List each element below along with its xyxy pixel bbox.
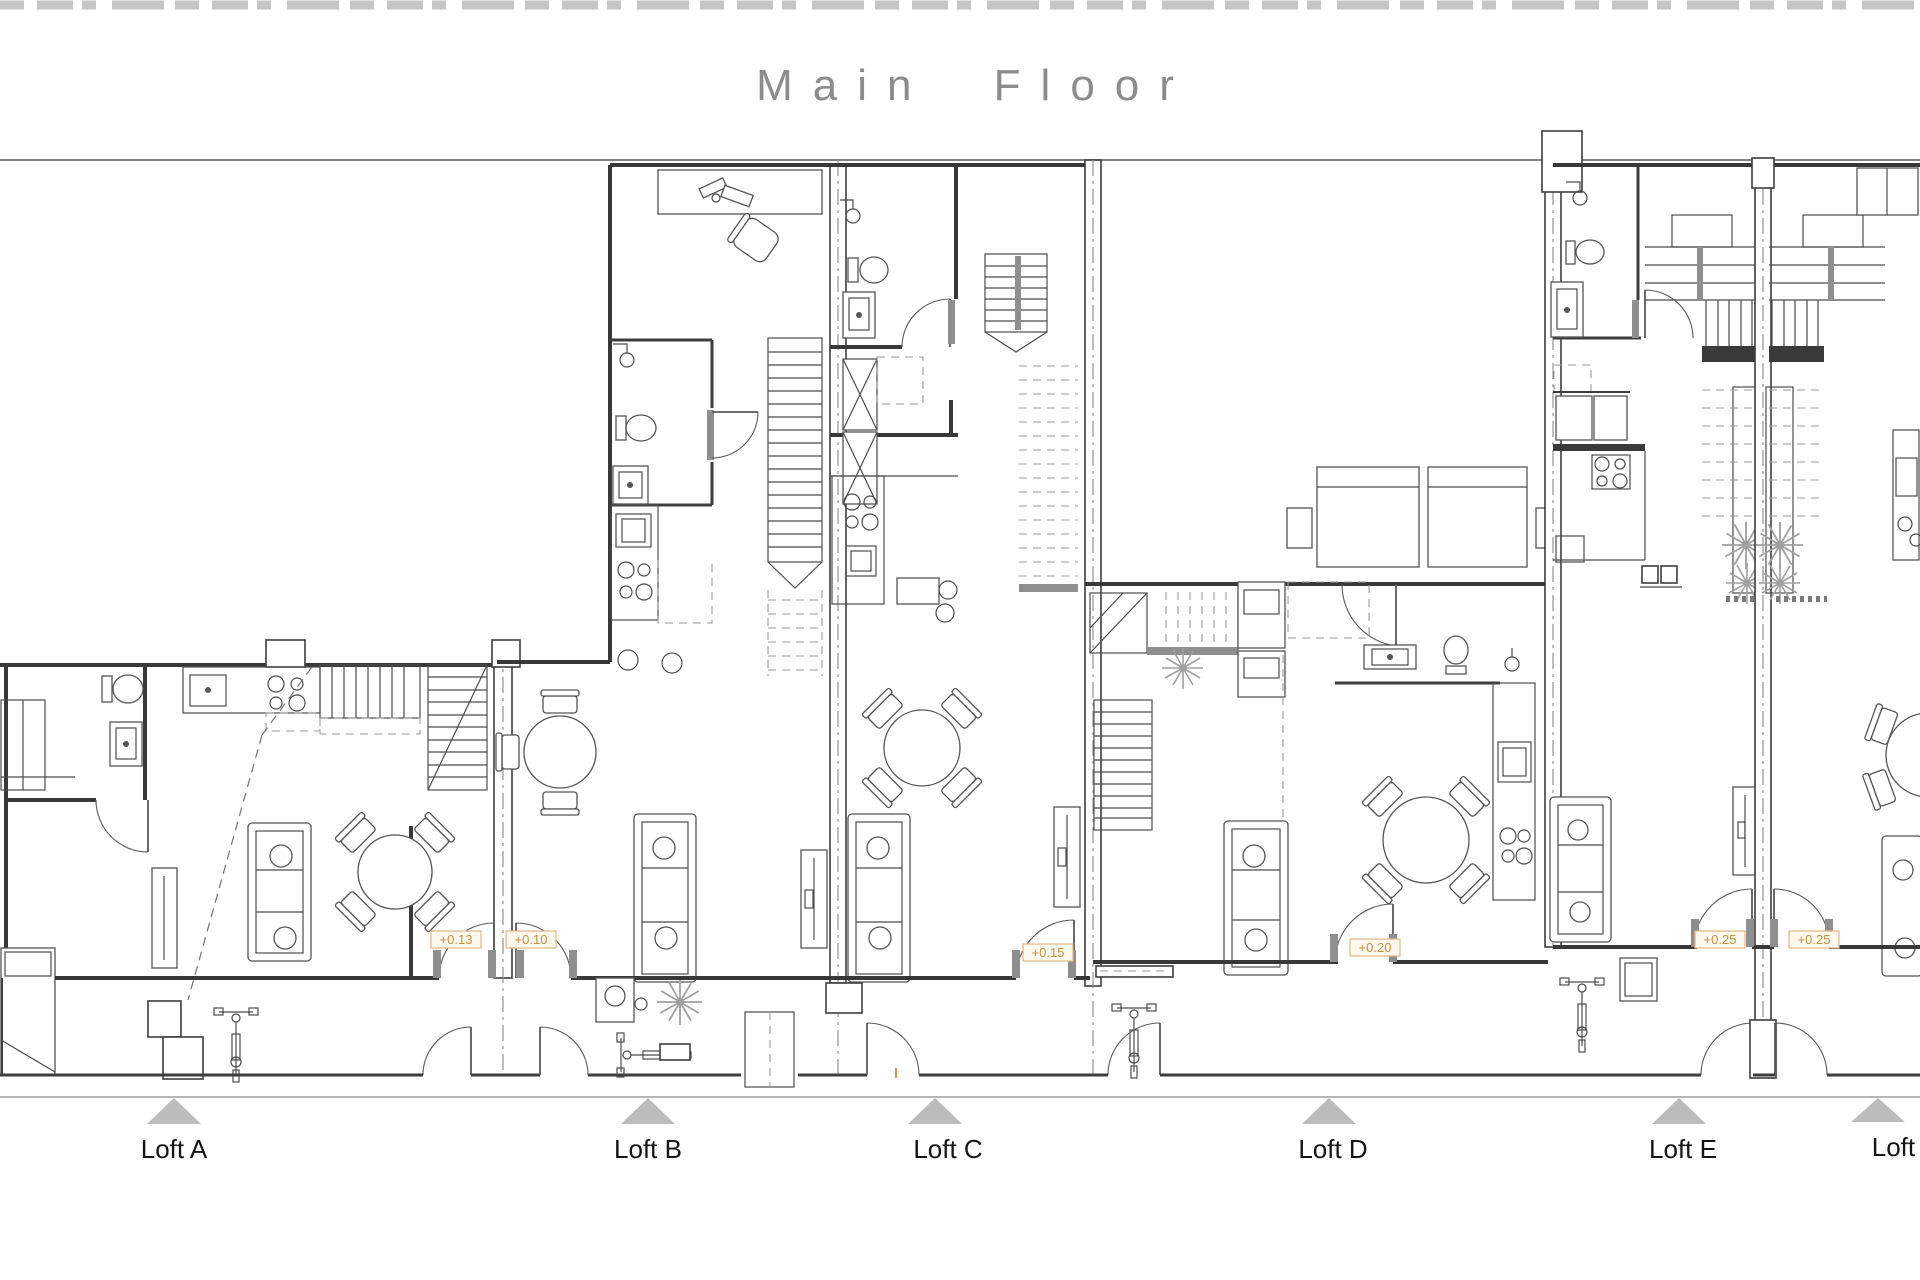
shared-steps [745,1012,794,1087]
loft-label-b: Loft B [614,1098,682,1164]
triangle-marker-icon [1302,1098,1356,1124]
column [1542,131,1582,192]
toilet-icon [113,675,143,703]
triangle-marker-icon [621,1098,675,1124]
sink [1896,458,1917,496]
triangle-marker-icon [147,1098,201,1124]
elevation-marker-d: +0.20 [1350,939,1400,956]
toilet-icon [1576,240,1604,264]
beds-d [1287,467,1553,567]
elevation-marker-e: +0.25 [1695,931,1745,948]
triangle-marker-icon [1652,1098,1706,1124]
toilet-icon [1444,636,1468,664]
door-swing [96,800,148,852]
svg-text:+0.10: +0.10 [515,932,548,947]
shower-icon [620,353,634,367]
bicycle-icon [1560,978,1604,1052]
dining-table-d [1362,776,1491,905]
stair-c [985,254,1078,592]
kitchen-e [1553,392,1682,587]
kitchen-d [1493,683,1535,900]
elevation-marker-b: +0.10 [506,931,556,948]
kitchen-a [183,667,320,731]
kitchen-f [1893,430,1920,560]
loft-b [496,165,830,982]
triangle-marker-icon [1851,1098,1905,1122]
sofa-d [1224,821,1288,975]
party-wall-ab [492,640,520,1075]
sofa-b [634,814,696,982]
plant-icon [657,980,702,1025]
gate-swing [423,1027,471,1075]
stair-f [1756,215,1885,604]
bathroom-c [840,200,955,347]
svg-text:+0.15: +0.15 [1032,945,1065,960]
gate-swing [867,1023,919,1075]
bicycle-icon [1112,1004,1156,1078]
gate-swing [540,1027,588,1075]
office-chair [727,212,782,265]
bicycle-icon [214,1008,258,1082]
floor-plan-page: +0.13 +0.10 +0.15 +0.20 +0.25 +0.25 Main… [0,0,1920,1280]
gate-swing [1775,1023,1827,1075]
island [897,578,939,604]
bathroom-b [610,340,758,505]
svg-text:Loft C: Loft C [913,1134,982,1164]
porch-f [1775,1023,1827,1075]
dining-table-a [335,812,456,933]
loft-label-c: Loft C [908,1098,983,1164]
porch-b [540,978,702,1077]
loft-label-a: Loft A [141,1098,208,1164]
door-swing [1645,290,1693,338]
closets-c [843,357,923,504]
porch-a [148,1001,471,1082]
kitchen-b [611,505,712,673]
sofa-c [848,814,910,982]
tv-c [1054,807,1080,907]
toilet-icon [626,415,656,441]
porch-c-gate [867,1023,919,1078]
elevation-marker-f: +0.25 [1789,931,1839,948]
stair-a [320,665,487,790]
desk-b [658,170,822,265]
bathroom-a [96,675,148,852]
door-swing [712,412,758,458]
floor-plan-drawing: +0.13 +0.10 +0.15 +0.20 +0.25 +0.25 Main… [0,0,1920,1280]
svg-text:Loft B: Loft B [614,1134,682,1164]
svg-text:Loft A: Loft A [141,1134,208,1164]
loft-d [1085,467,1553,1078]
sofa-e [1550,797,1611,942]
porch-e [1560,958,1753,1075]
page-title: Main Floor [756,61,1194,110]
loft-a [0,640,494,1082]
svg-text:+0.25: +0.25 [1798,932,1831,947]
nightstand [1287,508,1312,548]
porch-d [1096,966,1173,1078]
wardrobe-a [1,700,75,790]
shower-icon [1505,657,1519,671]
svg-text:+0.25: +0.25 [1704,932,1737,947]
dining-table-c [862,688,983,809]
bed-a [1,948,55,1075]
gate-swing [1701,1023,1753,1075]
shower-icon [846,209,860,223]
toilet-icon [860,257,888,283]
shower-icon [1573,191,1587,205]
loft-label-f: Loft F [1851,1098,1920,1162]
bathroom-d [1335,584,1519,683]
svg-text:Loft D: Loft D [1298,1134,1367,1164]
party-wall-cd [1085,160,1101,1075]
tv-a [152,868,177,968]
door-swing [902,299,950,347]
loft-label-e: Loft E [1649,1098,1717,1164]
stair-d [1090,592,1238,830]
sofa-f [1882,836,1920,976]
svg-text:Loft E: Loft E [1649,1134,1717,1164]
bike-trailer [660,1044,690,1060]
column [266,640,305,667]
stair-b [768,338,822,676]
elevation-marker-a: +0.13 [431,931,481,948]
triangle-marker-icon [908,1098,962,1124]
svg-text:+0.20: +0.20 [1359,940,1392,955]
sofa-a [248,823,311,961]
cabinets-d [1238,582,1369,697]
bench-seat [1556,396,1592,440]
stair-e [1645,215,1769,604]
elevation-marker-c: +0.15 [1023,944,1073,961]
closet-f [1857,168,1918,215]
dining-table-f [1862,703,1920,810]
svg-text:+0.13: +0.13 [440,932,473,947]
bench-seat [1594,396,1627,440]
svg-text:Loft F: Loft F [1872,1132,1920,1162]
loft-label-d: Loft D [1298,1098,1367,1164]
tv-b [801,850,827,948]
